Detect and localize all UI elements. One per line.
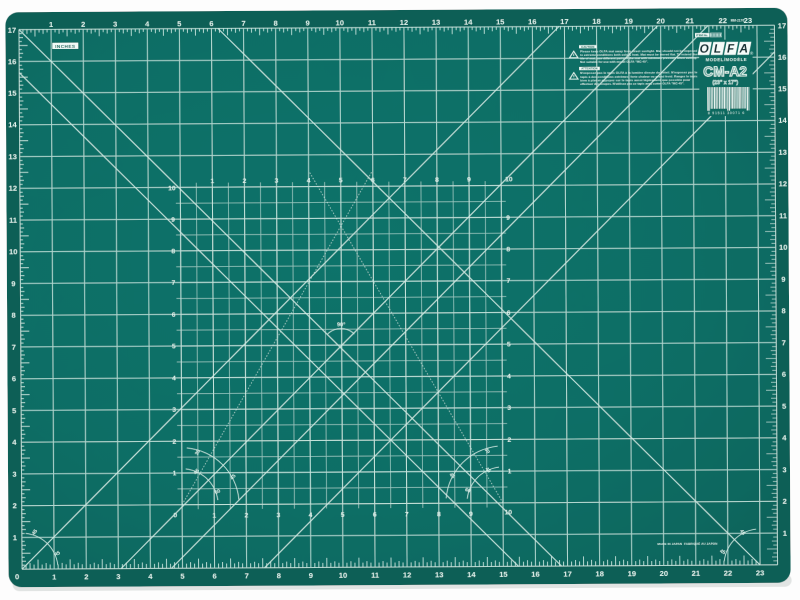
svg-text:4: 4	[309, 512, 313, 519]
svg-text:11: 11	[9, 216, 18, 225]
svg-text:14: 14	[778, 116, 787, 125]
svg-text:6: 6	[373, 511, 377, 518]
svg-text:3: 3	[782, 465, 786, 474]
svg-text:L: L	[714, 42, 721, 56]
svg-text:5: 5	[507, 342, 511, 349]
svg-text:9: 9	[506, 215, 510, 222]
svg-text:CAUTION: CAUTION	[581, 45, 594, 49]
svg-text:17: 17	[563, 569, 572, 578]
svg-text:Not suitable for use with mode: Not suitable for use with model OLFA "MC…	[580, 60, 648, 64]
svg-text:21: 21	[692, 569, 701, 578]
svg-text:effectuer des coupes. N'utilis: effectuer des coupes. N'utilisez pas ce …	[580, 81, 684, 86]
svg-text:9: 9	[309, 571, 313, 580]
svg-text:6: 6	[209, 19, 213, 28]
svg-text:13: 13	[432, 18, 441, 27]
svg-text:16: 16	[528, 17, 537, 26]
svg-text:9: 9	[306, 19, 310, 28]
svg-text:18: 18	[595, 569, 604, 578]
svg-text:14: 14	[8, 120, 17, 129]
svg-text:7: 7	[405, 511, 409, 518]
svg-text:3: 3	[507, 405, 511, 412]
svg-text:16: 16	[531, 569, 540, 578]
svg-text:15: 15	[8, 89, 17, 98]
svg-text:9: 9	[171, 217, 175, 224]
svg-text:7: 7	[507, 278, 511, 285]
svg-text:20: 20	[656, 16, 665, 25]
svg-text:14: 14	[467, 570, 476, 579]
svg-text:8: 8	[273, 19, 277, 28]
svg-text:4: 4	[307, 178, 311, 185]
svg-text:7: 7	[241, 19, 245, 28]
svg-text:10: 10	[505, 176, 513, 183]
svg-text:23: 23	[756, 568, 765, 577]
svg-text:3: 3	[12, 470, 16, 479]
svg-text:ATTENTION: ATTENTION	[581, 67, 597, 71]
svg-text:13: 13	[8, 152, 17, 161]
svg-text:10: 10	[779, 243, 788, 252]
svg-text:3: 3	[277, 512, 281, 519]
svg-text:9: 9	[781, 275, 785, 284]
svg-text:17: 17	[8, 26, 17, 35]
svg-text:17: 17	[560, 17, 569, 26]
svg-text:1: 1	[210, 178, 214, 185]
svg-text:3: 3	[116, 572, 120, 581]
svg-text:16: 16	[8, 57, 17, 66]
svg-text:3: 3	[172, 407, 176, 414]
svg-text:MADE IN JAPAN FABRIQUÉ AU JAP: MADE IN JAPAN FABRIQUÉ AU JAPON	[657, 540, 717, 545]
svg-text:11: 11	[371, 570, 380, 579]
svg-text:2: 2	[783, 497, 787, 506]
svg-text:O: O	[700, 42, 709, 56]
svg-text:INCHES: INCHES	[55, 44, 75, 49]
svg-text:12: 12	[779, 179, 788, 188]
svg-text:2: 2	[243, 178, 247, 185]
svg-text:20: 20	[660, 569, 669, 578]
svg-text:MM-2176: MM-2176	[731, 19, 745, 23]
svg-text:12: 12	[403, 570, 412, 579]
svg-text:F: F	[727, 41, 735, 55]
svg-text:8: 8	[437, 511, 441, 518]
svg-text:22: 22	[724, 568, 733, 577]
svg-text:15: 15	[496, 17, 505, 26]
svg-text:8: 8	[11, 311, 15, 320]
svg-text:90°: 90°	[337, 322, 345, 328]
svg-text:21: 21	[685, 16, 694, 25]
svg-text:1: 1	[212, 512, 216, 519]
svg-text:6: 6	[212, 571, 216, 580]
svg-text:4: 4	[172, 375, 176, 382]
svg-text:11: 11	[779, 211, 788, 220]
svg-text:(23" x 17"): (23" x 17")	[712, 80, 738, 86]
svg-text:12: 12	[9, 184, 18, 193]
svg-text:3: 3	[275, 178, 279, 185]
svg-text:5: 5	[172, 343, 176, 350]
svg-text:A: A	[738, 41, 748, 55]
svg-text:6: 6	[12, 374, 16, 383]
svg-text:10: 10	[339, 571, 348, 580]
svg-text:6: 6	[172, 312, 176, 319]
svg-text:16: 16	[778, 53, 787, 62]
svg-text:15: 15	[499, 570, 508, 579]
svg-text:8: 8	[506, 246, 510, 253]
svg-text:22: 22	[719, 16, 728, 25]
svg-text:CM-A2: CM-A2	[703, 64, 747, 79]
svg-text:4: 4	[507, 373, 511, 380]
svg-text:11: 11	[368, 18, 377, 27]
svg-text:23: 23	[744, 16, 753, 25]
svg-text:7: 7	[12, 343, 16, 352]
svg-text:15: 15	[778, 84, 787, 93]
svg-text:2: 2	[13, 501, 17, 510]
svg-text:1: 1	[173, 470, 177, 477]
svg-text:9: 9	[469, 511, 473, 518]
svg-text:9: 9	[11, 279, 15, 288]
svg-text:12: 12	[400, 18, 409, 27]
svg-text:10: 10	[168, 185, 176, 192]
svg-text:19: 19	[628, 569, 637, 578]
svg-text:2: 2	[507, 437, 511, 444]
svg-text:18: 18	[592, 17, 601, 26]
svg-text:8 91511 30071 6: 8 91511 30071 6	[708, 111, 745, 115]
svg-text:13: 13	[435, 570, 444, 579]
svg-text:6: 6	[782, 370, 786, 379]
svg-text:5: 5	[341, 512, 345, 519]
svg-text:8: 8	[171, 248, 175, 255]
svg-text:9: 9	[467, 177, 471, 184]
svg-text:0: 0	[15, 572, 19, 581]
svg-text:3: 3	[113, 20, 117, 29]
svg-text:13: 13	[778, 148, 787, 157]
svg-text:8: 8	[781, 306, 785, 315]
svg-text:1: 1	[508, 469, 512, 476]
svg-text:7: 7	[245, 571, 249, 580]
svg-text:5: 5	[339, 177, 343, 184]
svg-text:2: 2	[81, 20, 85, 29]
svg-text:8: 8	[277, 571, 281, 580]
svg-text:10: 10	[9, 247, 18, 256]
svg-text:19: 19	[624, 17, 633, 26]
svg-text:8: 8	[435, 177, 439, 184]
svg-text:7: 7	[172, 280, 176, 287]
svg-text:14: 14	[464, 18, 473, 27]
svg-text:MODEL/MODÈLE: MODEL/MODÈLE	[706, 57, 747, 62]
svg-text:ITEM No.: ITEM No.	[696, 33, 708, 37]
svg-text:10: 10	[336, 18, 345, 27]
svg-text:2: 2	[84, 572, 88, 581]
svg-text:17: 17	[778, 21, 787, 30]
svg-text:2: 2	[172, 439, 176, 446]
svg-text:7: 7	[782, 338, 786, 347]
svg-text:2: 2	[244, 512, 248, 519]
